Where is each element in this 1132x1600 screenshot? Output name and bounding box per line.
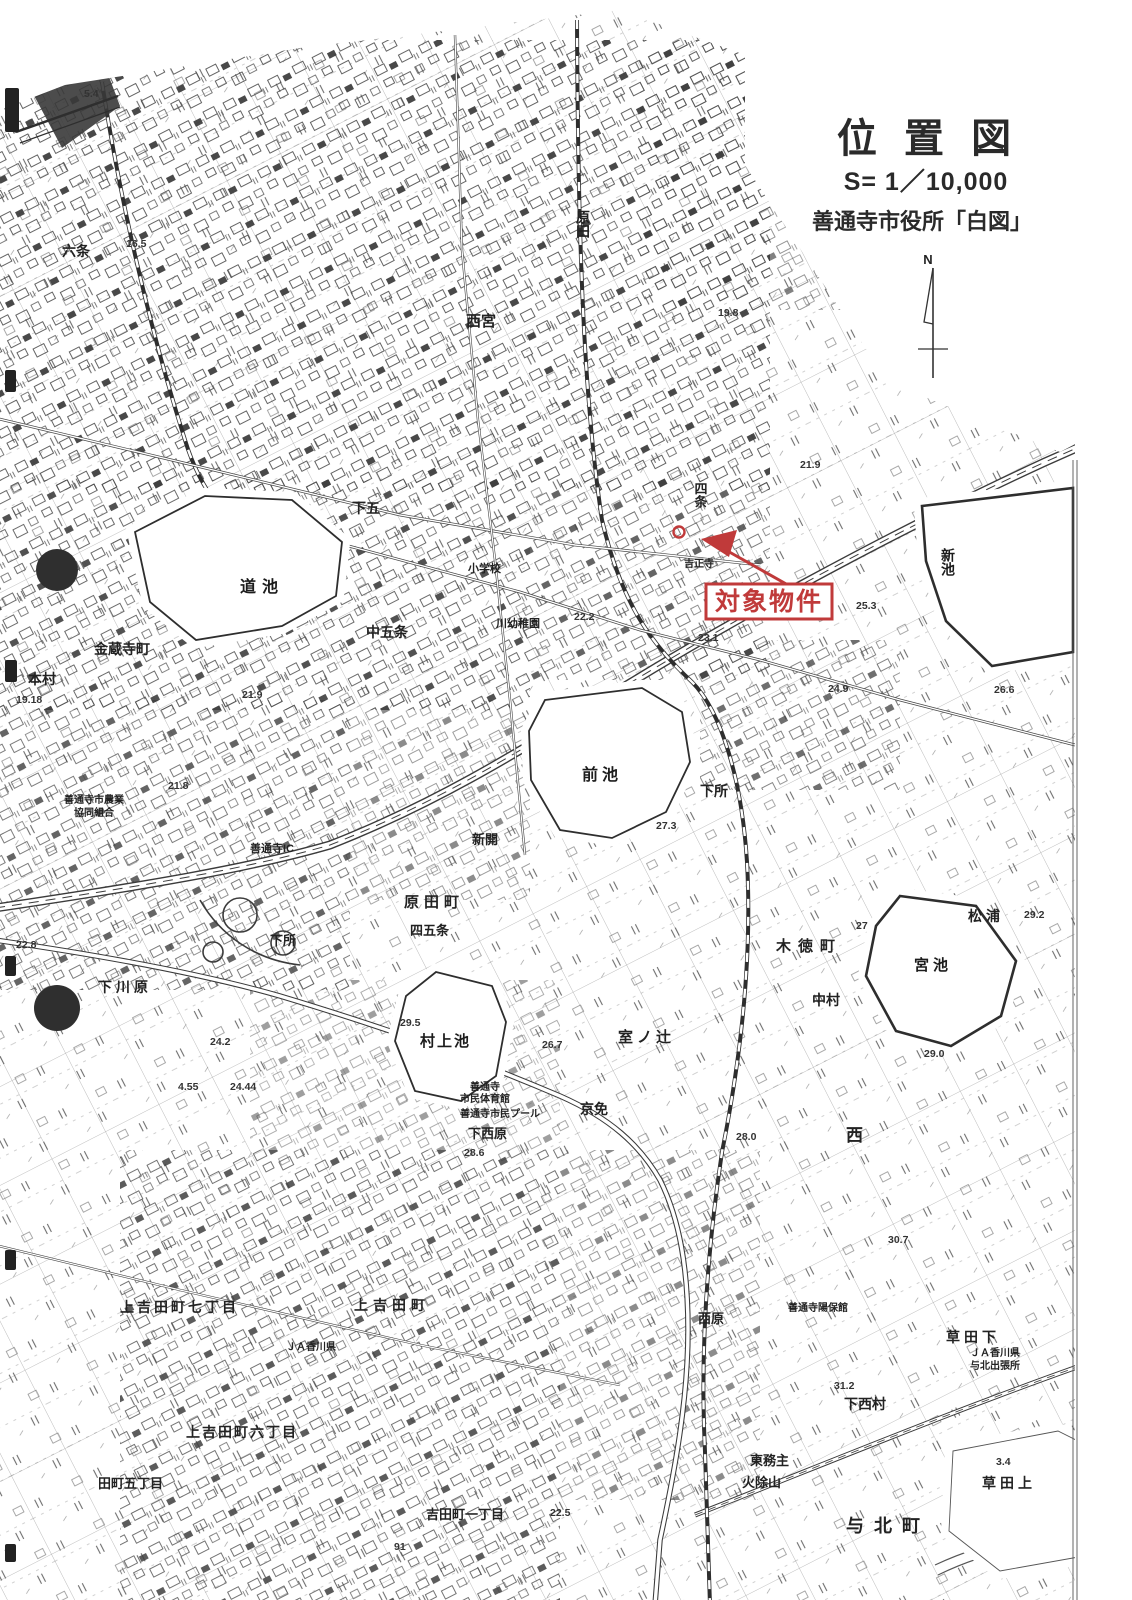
pond-name-label: 新池 [940,547,956,577]
spot-elevation: 27.3 [656,820,677,832]
scan-mark [5,370,16,392]
scan-mark [5,660,17,682]
map-place-label: 善通寺 [470,1080,500,1093]
scanned-location-map-page: 六条原田西宮下五四条中五条金蔵寺町本村小学校川幼稚園吉正寺下所下所新開原田町四五… [0,0,1132,1600]
spot-elevation: 22.2 [574,611,595,623]
map-place-label: 四五条 [410,923,450,938]
map-place-label: 小学校 [467,561,502,575]
spot-elevation: 24.2 [210,1036,231,1048]
spot-elevation: 22.5 [550,1507,571,1519]
map-place-label: 下西村 [844,1396,886,1412]
map-place-label: 下所 [270,933,296,948]
map-place-label: 上吉田町六丁目 [186,1424,298,1440]
map-place-label: 四条 [693,482,708,509]
spot-elevation: 19.18 [16,694,42,706]
scan-mark [5,956,16,976]
spot-elevation: 29.2 [1024,909,1045,921]
spot-elevation: 26.7 [542,1039,563,1051]
spot-elevation: 22.8 [16,939,37,951]
spot-elevation: 24.9 [828,683,849,695]
map-place-label: 上吉田町 [354,1297,430,1313]
spot-elevation: 27 [856,920,868,932]
map-place-label: 西宮 [466,312,496,330]
spot-elevation: 30.7 [888,1234,909,1246]
map-place-label: 草田上 [982,1475,1036,1491]
map-place-label: 松浦 [968,908,1004,924]
map-place-label: 吉正寺 [684,557,714,570]
map-place-label: 原田 [575,210,591,239]
map-place-label: 川幼稚園 [495,616,540,630]
map-place-label: 原田町 [404,894,464,911]
spot-elevation: 24.44 [230,1081,256,1093]
spot-elevation: 31.2 [834,1380,855,1392]
map-svg: 六条原田西宮下五四条中五条金蔵寺町本村小学校川幼稚園吉正寺下所下所新開原田町四五… [0,0,1132,1600]
map-place-label: 本村 [28,671,56,687]
map-place-label: 協同組合 [74,806,115,819]
map-place-label: 与北町 [846,1516,930,1536]
right-margin [1079,0,1132,1600]
map-place-label: 西原 [698,1311,724,1326]
pond-name-label: 道池 [240,577,284,596]
pond-name-label: 村上池 [420,1032,471,1050]
spot-elevation: 25.3 [856,600,877,612]
spot-elevation: 23.1 [698,632,719,644]
map-place-label: 六条 [62,243,91,259]
spot-elevation: 21.9 [242,689,263,701]
map-place-label: 与北出張所 [970,1359,1020,1372]
scan-mark [5,1544,16,1562]
spot-elevation: 28.0 [736,1131,757,1143]
spot-elevation: 5.4 [84,88,99,100]
pond-name-label: 前池 [582,765,622,784]
spot-elevation: 3.4 [996,1456,1011,1468]
scan-mark [5,88,19,132]
map-place-label: 火除山 [742,1475,781,1490]
page-title: 位 置 図 [837,117,1019,161]
map-place-label: 下西原 [468,1126,507,1141]
spot-elevation: 21.8 [168,780,189,792]
map-place-label: 西 [846,1126,863,1145]
map-place-label: 市民体育館 [460,1092,510,1105]
map-place-label: ＪＡ香川県 [970,1346,1020,1359]
map-place-label: 京免 [580,1101,608,1117]
map-place-label: ＪＡ香川県 [286,1340,336,1353]
map-place-label: 木徳町 [775,937,842,955]
pond-name-label: 宮池 [914,956,952,974]
map-place-label: 田町五丁目 [98,1476,163,1491]
punch-hole [36,549,78,591]
map-place-label: 善通寺陽保館 [788,1301,848,1314]
spot-elevation: 28.6 [464,1147,485,1159]
scale-text: S= 1／10,000 [844,168,1009,196]
map-place-label: 室ノ辻 [618,1028,675,1046]
spot-elevation: 16.5 [126,238,147,250]
spot-elevation: 29.5 [400,1017,421,1029]
spot-elevation: 21.9 [800,459,821,471]
scan-mark [5,1250,16,1270]
spot-elevation: 29.0 [924,1048,945,1060]
spot-elevation: 19.8 [718,307,739,319]
title-block: 位 置 図 S= 1／10,000 善通寺市役所「白図」 [812,117,1032,234]
map-place-label: 中村 [812,992,840,1008]
map-place-label: 善通寺IC [250,841,294,855]
map-place-label: 上吉田町七丁目 [120,1299,239,1315]
target-label: 対象物件 [715,588,823,616]
north-label: N [923,252,932,267]
map-place-label: 善通寺市民プール [460,1107,540,1120]
map-place-label: 下所 [700,783,728,799]
spot-elevation: 4.55 [178,1081,199,1093]
spot-elevation: 26.6 [994,684,1015,696]
spot-elevation: 91 [394,1541,406,1553]
punch-hole [34,985,80,1031]
source-text: 善通寺市役所「白図」 [812,209,1032,234]
map-place-label: 草田下 [946,1329,1000,1345]
map-place-label: 善通寺市農業 [64,793,125,806]
map-place-label: 新開 [472,832,498,847]
map-place-label: 下五 [352,500,380,516]
map-place-label: 下川原 [98,979,152,995]
map-place-label: 中五条 [366,624,409,640]
map-place-label: 金蔵寺町 [93,641,150,657]
map-place-label: 吉田町一丁目 [426,1507,504,1522]
map-place-label: 東務主 [750,1453,789,1468]
